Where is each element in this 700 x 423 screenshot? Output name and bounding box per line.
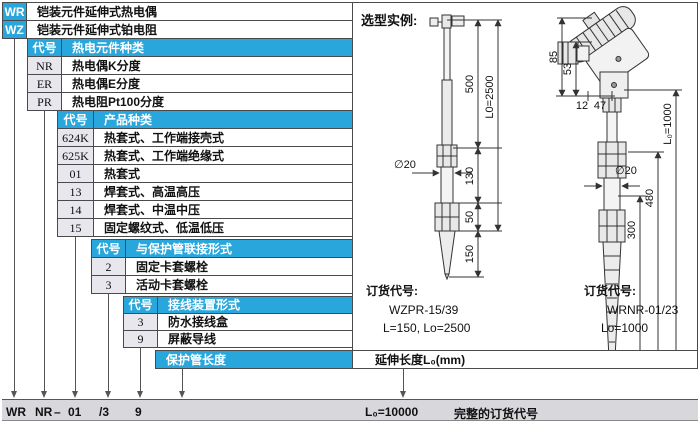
- dim-label: L0=2500: [484, 75, 496, 118]
- dim-label: 150: [464, 245, 476, 263]
- order-code: WRNR-01/23: [607, 304, 678, 316]
- desc-cell: 固定螺纹式、低温低压: [93, 218, 353, 237]
- diameter-label: ∅20: [394, 159, 416, 171]
- code-cell: 3: [123, 313, 158, 331]
- level2-header-code: 代号: [57, 110, 94, 129]
- code-cell: 625K: [57, 146, 94, 165]
- desc-cell: 防水接线盒: [157, 313, 353, 331]
- bar-code: /3: [99, 405, 109, 419]
- desc-cell: 热电阻Pt100分度: [61, 92, 353, 111]
- desc-cell: 热电偶K分度: [61, 56, 353, 75]
- connector-line: [140, 348, 141, 391]
- connector-line: [108, 294, 109, 391]
- code-cell: 9: [123, 330, 158, 348]
- catalog-page: WR 铠装元件延伸式热电偶 WZ 铠装元件延伸式铂电阻 代号 热电元件种类 NR…: [0, 0, 700, 423]
- down-arrow-icon: [72, 391, 78, 398]
- dim-label: 500: [464, 75, 476, 93]
- dim-label: 130: [464, 167, 476, 185]
- dim-label: 12: [576, 100, 588, 112]
- level3-header-title: 与保护管联接形式: [125, 239, 353, 258]
- down-arrow-icon: [137, 391, 143, 398]
- connector-line: [182, 369, 183, 391]
- order-spec: Lo=1000: [601, 322, 648, 334]
- order-heading: 订货代号:: [366, 284, 418, 298]
- order-code: WZPR-15/39: [389, 304, 458, 316]
- dim-label: 53: [562, 63, 574, 75]
- level3-header-code: 代号: [91, 239, 126, 258]
- level4-header-code: 代号: [123, 296, 158, 314]
- order-block-right: 订货代号: WRNR-01/23 Lo=1000: [584, 285, 636, 297]
- diameter-label: ∅20: [615, 165, 637, 177]
- connector-line: [75, 237, 76, 391]
- dim-label: 50: [464, 211, 476, 223]
- code-cell: 01: [57, 164, 94, 183]
- bar-code: –: [54, 405, 61, 419]
- connector-line: [44, 111, 45, 391]
- code-cell: PR: [27, 92, 62, 111]
- code-cell: 14: [57, 200, 94, 219]
- down-arrow-icon: [11, 391, 17, 398]
- length-row-label: 保护管长度: [155, 350, 353, 369]
- code-cell: 13: [57, 182, 94, 201]
- bar-label: 完整的订货代号: [454, 405, 538, 422]
- connector-line: [403, 369, 404, 391]
- desc-cell: 屏蔽导线: [157, 330, 353, 348]
- code-cell: 3: [91, 275, 126, 294]
- bar-code: NR: [35, 405, 52, 419]
- down-arrow-icon: [105, 391, 111, 398]
- level2-header-title: 产品种类: [93, 110, 353, 129]
- code-cell: NR: [27, 56, 62, 75]
- level4-header-title: 接线装置形式: [157, 296, 353, 314]
- root-desc: 铠装元件延伸式铂电阻: [26, 20, 353, 39]
- dim-label: 85: [548, 51, 560, 63]
- dim-label: 480: [644, 189, 656, 207]
- desc-cell: 热套式、工作端接壳式: [93, 128, 353, 147]
- extension-length-label: 延伸长度L₀(mm): [352, 350, 698, 369]
- bar-code: 9: [135, 405, 142, 419]
- connector-line: [14, 39, 15, 391]
- bar-length-value: L₀=10000: [365, 405, 418, 419]
- desc-cell: 焊套式、高温高压: [93, 182, 353, 201]
- bar-code: WR: [6, 405, 26, 419]
- code-cell: ER: [27, 74, 62, 93]
- dim-label: 300: [626, 221, 638, 239]
- desc-cell: 焊套式、中温中压: [93, 200, 353, 219]
- code-cell: 2: [91, 257, 126, 276]
- order-code-bar: WR NR – 01 /3 9 L₀=10000 完整的订货代号: [2, 399, 698, 421]
- desc-cell: 热套式: [93, 164, 353, 183]
- bar-code: 01: [68, 405, 81, 419]
- down-arrow-icon: [400, 391, 406, 398]
- down-arrow-icon: [179, 391, 185, 398]
- order-heading: 订货代号:: [584, 284, 636, 298]
- level1-header-title: 热电元件种类: [61, 38, 353, 57]
- down-arrow-icon: [41, 391, 47, 398]
- root-desc: 铠装元件延伸式热电偶: [26, 2, 353, 21]
- code-cell: 624K: [57, 128, 94, 147]
- desc-cell: 热电偶E分度: [61, 74, 353, 93]
- dim-label: 47: [594, 100, 606, 112]
- dim-label: L₀=1000: [662, 103, 674, 145]
- code-cell: 15: [57, 218, 94, 237]
- root-code: WZ: [2, 20, 27, 39]
- desc-cell: 固定卡套螺栓: [125, 257, 353, 276]
- order-block-left: 订货代号: WZPR-15/39 L=150, Lo=2500: [366, 285, 418, 297]
- level1-header-code: 代号: [27, 38, 62, 57]
- order-spec: L=150, Lo=2500: [383, 322, 470, 334]
- root-code: WR: [2, 2, 27, 21]
- desc-cell: 活动卡套螺栓: [125, 275, 353, 294]
- desc-cell: 热套式、工作端绝缘式: [93, 146, 353, 165]
